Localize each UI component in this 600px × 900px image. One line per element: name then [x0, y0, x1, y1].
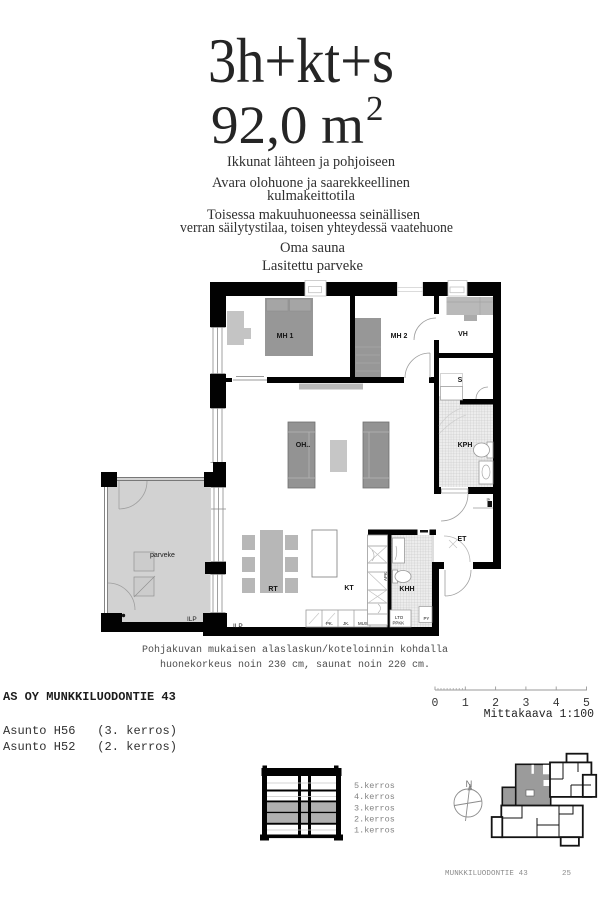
svg-text:Lasitettu parveke: Lasitettu parveke [262, 258, 363, 274]
svg-text:3.kerros: 3.kerros [354, 804, 395, 814]
svg-text:huonekorkeus noin 230 cm, saun: huonekorkeus noin 230 cm, saunat noin 22… [160, 659, 430, 671]
svg-text:Pohjakuvan mukaisen alaslaskun: Pohjakuvan mukaisen alaslaskun/koteloinn… [142, 644, 448, 656]
svg-text:PY: PY [424, 616, 430, 621]
svg-text:N: N [466, 779, 473, 790]
svg-text:PK.: PK. [326, 621, 333, 626]
svg-text:0: 0 [432, 697, 439, 710]
svg-text:ILP: ILP [187, 616, 197, 623]
svg-text:2.kerros: 2.kerros [354, 815, 395, 825]
svg-text:OH..: OH.. [296, 442, 310, 449]
svg-text:1.kerros: 1.kerros [354, 826, 395, 836]
svg-text:25: 25 [562, 870, 572, 878]
svg-text:KHH: KHH [399, 586, 414, 593]
svg-text:3h+kt+s: 3h+kt+s [208, 25, 394, 96]
svg-text:KT: KT [344, 585, 354, 592]
svg-text:4.kerros: 4.kerros [354, 792, 395, 802]
svg-text:MUS: MUS [358, 621, 368, 626]
svg-text:PPKK: PPKK [393, 621, 405, 626]
svg-text:parveke: parveke [150, 552, 175, 559]
svg-text:kulmakeittotila: kulmakeittotila [267, 188, 355, 204]
svg-text:1: 1 [462, 697, 469, 710]
svg-text:2: 2 [366, 89, 384, 128]
svg-text:Oma sauna: Oma sauna [280, 240, 345, 256]
svg-text:MH 2: MH 2 [391, 333, 408, 340]
svg-text:ET: ET [458, 536, 468, 543]
svg-text:Asunto H56 (3. kerros): Asunto H56 (3. kerros) [3, 724, 177, 738]
svg-text:ILP: ILP [233, 623, 243, 630]
svg-text:92,0 m: 92,0 m [211, 95, 364, 155]
svg-text:MUNKKILUODONTIE 43: MUNKKILUODONTIE 43 [445, 870, 528, 878]
svg-text:MH 1: MH 1 [277, 333, 294, 340]
svg-text:APK: APK [383, 572, 388, 581]
svg-text:Mittakaava 1:100: Mittakaava 1:100 [484, 708, 595, 721]
svg-text:Asunto H52 (2. kerros): Asunto H52 (2. kerros) [3, 740, 177, 754]
svg-text:verran säilytystilaa, toisen y: verran säilytystilaa, toisen yhteydessä … [180, 220, 453, 236]
svg-text:AS OY MUNKKILUODONTIE 43: AS OY MUNKKILUODONTIE 43 [3, 690, 176, 704]
svg-text:JK.: JK. [343, 621, 349, 626]
svg-text:Ikkunat lähteen ja pohjoiseen: Ikkunat lähteen ja pohjoiseen [227, 154, 395, 170]
svg-text:LTO: LTO [395, 615, 404, 620]
svg-text:RT: RT [268, 586, 278, 593]
svg-text:sk: sk [487, 498, 491, 502]
svg-text:5.kerros: 5.kerros [354, 781, 395, 791]
svg-text:KPH: KPH [458, 442, 473, 449]
svg-text:VH: VH [458, 331, 468, 338]
svg-text:S: S [458, 377, 463, 384]
